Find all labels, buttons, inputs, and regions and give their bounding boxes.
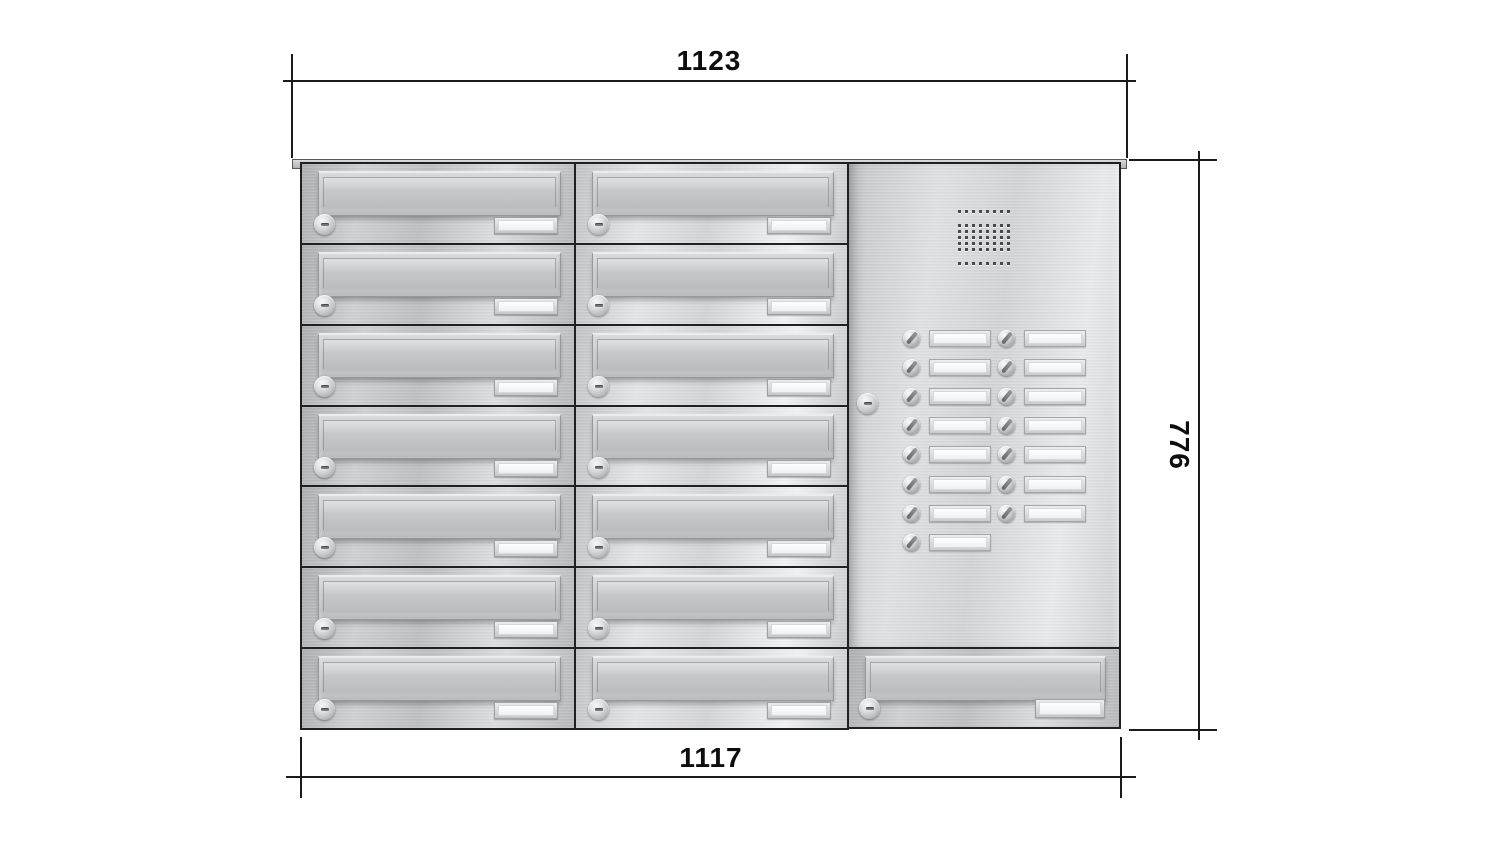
lock-icon [314, 457, 335, 478]
speaker-dot [986, 236, 989, 239]
nameplate-label [498, 543, 554, 554]
nameplate-label [498, 382, 554, 393]
speaker-dot [958, 224, 961, 227]
speaker-dot [958, 230, 961, 233]
nameplate [767, 702, 831, 719]
letter-flap-icon [865, 656, 1106, 701]
speaker-dot [1007, 236, 1010, 239]
doorbell-nameplate [1024, 476, 1086, 493]
nameplate-label [771, 382, 827, 393]
nameplate [767, 460, 831, 477]
speaker-dot [979, 248, 982, 251]
nameplate-label [498, 220, 554, 231]
speaker-dot [1007, 242, 1010, 245]
nameplate-label [771, 624, 827, 635]
doorbell-nameplate [1024, 505, 1086, 522]
mailbox-door [574, 405, 849, 488]
nameplate [494, 217, 558, 234]
lock-icon [588, 537, 609, 558]
technical-drawing-canvas: 1123 1117 776 [0, 0, 1500, 856]
doorbell-nameplate [1024, 359, 1086, 376]
speaker-dot [1000, 236, 1003, 239]
doorbell-nameplate [1024, 330, 1086, 347]
speaker-dot [993, 248, 996, 251]
letter-flap-icon [318, 414, 561, 459]
mailbox-door [300, 405, 576, 488]
nameplate [494, 460, 558, 477]
speaker-dot [993, 230, 996, 233]
mailbox-door [300, 485, 576, 568]
doorbell-nameplate-label [1028, 333, 1082, 344]
speaker-dot [979, 230, 982, 233]
speaker-dot [1007, 224, 1010, 227]
doorbell-nameplate [929, 534, 991, 551]
doorbell-nameplate-label [1028, 479, 1082, 490]
nameplate-label [498, 705, 554, 716]
doorbell-nameplate [929, 417, 991, 434]
mailbox-door [300, 566, 576, 649]
letter-flap-icon [592, 333, 834, 378]
speaker-dot [958, 210, 961, 213]
doorbell-nameplate [929, 505, 991, 522]
speaker-dot [972, 248, 975, 251]
speaker-dot [1007, 248, 1010, 251]
doorbell-button-icon [903, 446, 920, 463]
nameplate [1035, 699, 1105, 718]
doorbell-nameplate [929, 359, 991, 376]
doorbell-nameplate [1024, 417, 1086, 434]
speaker-dot [965, 262, 968, 265]
lock-icon [588, 699, 609, 720]
nameplate-label [771, 543, 827, 554]
mailbox-door [574, 485, 849, 568]
lock-icon [588, 457, 609, 478]
speaker-dot [986, 242, 989, 245]
speaker-dot [972, 236, 975, 239]
speaker-dot [965, 236, 968, 239]
mailbox-door [574, 243, 849, 326]
letter-flap-icon [318, 575, 561, 620]
doorbell-nameplate [929, 476, 991, 493]
speaker-dot [965, 242, 968, 245]
nameplate [767, 540, 831, 557]
mailbox-door [300, 647, 576, 730]
doorbell-button-icon [903, 476, 920, 493]
speaker-dot [979, 224, 982, 227]
doorbell-nameplate-label [1028, 391, 1082, 402]
speaker-dot [979, 210, 982, 213]
doorbell-nameplate [929, 330, 991, 347]
speaker-dot [1007, 210, 1010, 213]
nameplate-label [771, 463, 827, 474]
nameplate-label [771, 301, 827, 312]
letter-flap-icon [318, 333, 561, 378]
nameplate [767, 379, 831, 396]
lock-icon [314, 376, 335, 397]
nameplate-label [771, 705, 827, 716]
doorbell-button-icon [998, 476, 1015, 493]
letter-flap-icon [592, 575, 834, 620]
lock-icon [588, 214, 609, 235]
speaker-dot [972, 262, 975, 265]
speaker-dot [979, 242, 982, 245]
nameplate [767, 621, 831, 638]
nameplate [494, 379, 558, 396]
speaker-dot [993, 262, 996, 265]
letter-flap-icon [318, 252, 561, 297]
mailbox-door [300, 324, 576, 407]
doorbell-nameplate [1024, 446, 1086, 463]
speaker-dot [972, 210, 975, 213]
nameplate-label [498, 463, 554, 474]
lock-icon [314, 214, 335, 235]
speaker-dot [972, 230, 975, 233]
doorbell-button-icon [998, 505, 1015, 522]
speaker-dot [993, 236, 996, 239]
lock-icon [859, 698, 880, 719]
speaker-dot [965, 230, 968, 233]
doorbell-nameplate-label [933, 391, 987, 402]
nameplate-label [771, 220, 827, 231]
doorbell-nameplate-label [933, 333, 987, 344]
nameplate-label [1039, 702, 1101, 715]
mailbox-door [300, 243, 576, 326]
doorbell-nameplate-label [933, 362, 987, 373]
doorbell-button-icon [903, 330, 920, 347]
intercom-panel [847, 162, 1121, 649]
mailbox-door [574, 324, 849, 407]
doorbell-button-icon [903, 505, 920, 522]
nameplate-label [498, 301, 554, 312]
speaker-dot [958, 248, 961, 251]
speaker-dot [1000, 224, 1003, 227]
mailbox-door [300, 162, 576, 245]
speaker-dot [1007, 230, 1010, 233]
lock-icon [588, 618, 609, 639]
nameplate [767, 298, 831, 315]
speaker-dot [1000, 230, 1003, 233]
doorbell-button-icon [903, 534, 920, 551]
speaker-dot [972, 242, 975, 245]
mailbox-unit [0, 0, 1500, 856]
speaker-dot [1000, 248, 1003, 251]
nameplate [494, 621, 558, 638]
speaker-dot [965, 224, 968, 227]
doorbell-nameplate-label [933, 508, 987, 519]
letter-flap-icon [592, 414, 834, 459]
doorbell-nameplate [1024, 388, 1086, 405]
doorbell-nameplate-label [933, 449, 987, 460]
speaker-dot [1007, 262, 1010, 265]
speaker-dot [986, 210, 989, 213]
speaker-dot [986, 248, 989, 251]
speaker-dot [979, 236, 982, 239]
doorbell-button-icon [903, 417, 920, 434]
letter-flap-icon [592, 171, 834, 216]
doorbell-button-icon [903, 359, 920, 376]
mailbox-door [574, 162, 849, 245]
nameplate [494, 540, 558, 557]
doorbell-nameplate-label [1028, 449, 1082, 460]
doorbell-nameplate-label [1028, 420, 1082, 431]
doorbell-button-icon [998, 330, 1015, 347]
speaker-dot [986, 262, 989, 265]
doorbell-nameplate-label [1028, 508, 1082, 519]
nameplate [494, 298, 558, 315]
speaker-dot [972, 224, 975, 227]
speaker-dot [958, 242, 961, 245]
letter-flap-icon [592, 252, 834, 297]
doorbell-nameplate-label [933, 479, 987, 490]
lock-icon [314, 295, 335, 316]
doorbell-button-icon [998, 388, 1015, 405]
speaker-dot [986, 230, 989, 233]
mailbox-door-wide [847, 647, 1121, 729]
panel-lock-icon [857, 393, 878, 414]
letter-flap-icon [592, 656, 834, 701]
speaker-dot [965, 210, 968, 213]
speaker-dot [993, 210, 996, 213]
letter-flap-icon [318, 171, 561, 216]
doorbell-button-icon [998, 417, 1015, 434]
doorbell-button-icon [998, 446, 1015, 463]
lock-icon [314, 537, 335, 558]
mailbox-door [574, 566, 849, 649]
doorbell-nameplate [929, 446, 991, 463]
speaker-dot [993, 242, 996, 245]
speaker-grille-icon [958, 210, 1010, 266]
doorbell-nameplate-label [933, 537, 987, 548]
speaker-dot [1000, 210, 1003, 213]
speaker-dot [1000, 242, 1003, 245]
letter-flap-icon [318, 494, 561, 539]
mailbox-door [574, 647, 849, 730]
lock-icon [314, 618, 335, 639]
speaker-dot [965, 248, 968, 251]
nameplate [767, 217, 831, 234]
doorbell-button-icon [998, 359, 1015, 376]
lock-icon [588, 376, 609, 397]
doorbell-nameplate-label [933, 420, 987, 431]
doorbell-nameplate [929, 388, 991, 405]
lock-icon [588, 295, 609, 316]
nameplate [494, 702, 558, 719]
doorbell-button-icon [903, 388, 920, 405]
nameplate-label [498, 624, 554, 635]
doorbell-nameplate-label [1028, 362, 1082, 373]
letter-flap-icon [592, 494, 834, 539]
speaker-dot [979, 262, 982, 265]
speaker-dot [993, 224, 996, 227]
speaker-dot [986, 224, 989, 227]
lock-icon [314, 699, 335, 720]
speaker-dot [958, 262, 961, 265]
speaker-dot [1000, 262, 1003, 265]
letter-flap-icon [318, 656, 561, 701]
speaker-dot [958, 236, 961, 239]
